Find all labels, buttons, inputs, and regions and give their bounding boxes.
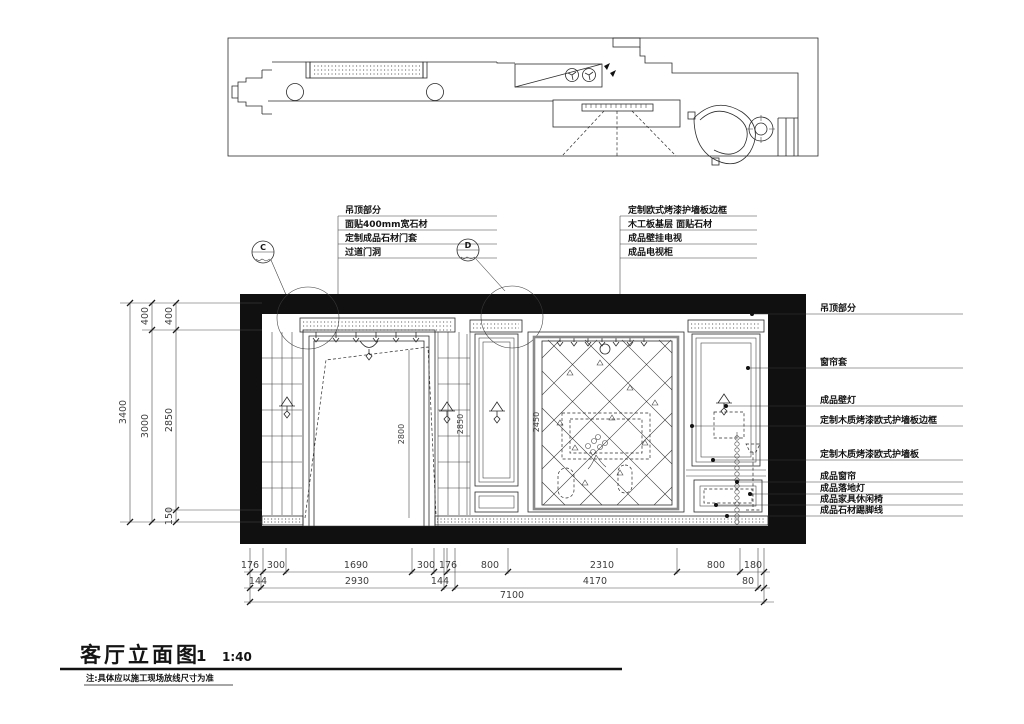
dim-b2-144a: 144: [249, 576, 267, 587]
ceiling-label-right: 吊顶部分: [820, 302, 856, 314]
marker-c-letter: C: [260, 243, 266, 252]
dim-2850: 2850: [164, 408, 175, 432]
dim-b1-180: 180: [744, 560, 762, 571]
drawing-note: 注:具体应以施工现场放线尺寸为准: [86, 673, 214, 683]
dim-400-mid: 400: [140, 307, 151, 325]
lounge-chair-label: 成品家具休闲椅: [820, 493, 883, 505]
door-height-dim: 2800: [397, 424, 406, 444]
dim-b2-4170: 4170: [583, 576, 607, 587]
dim-b2-80: 80: [742, 576, 754, 587]
section-marker-c: C: [252, 241, 287, 297]
dim-b2-2930: 2930: [345, 576, 369, 587]
dim-b1-2310: 2310: [590, 560, 614, 571]
skirting-label: 成品石材踢脚线: [820, 504, 883, 516]
drawing-number: 1: [196, 647, 206, 665]
dim-b1-176a: 176: [241, 560, 259, 571]
panel-frame-edge-label: 定制木质烤漆欧式护墙板边框: [819, 414, 937, 426]
title-block: 客厅立面图 1 1:40 注:具体应以施工现场放线尺寸为准: [60, 643, 622, 685]
wall-height-dim: 2850: [456, 414, 465, 434]
marker-d-letter: D: [465, 241, 472, 250]
ceiling-label: 吊顶部分: [345, 204, 381, 216]
elevation-view: 2800 2850: [240, 286, 806, 544]
drawing-title: 客厅立面图: [80, 643, 200, 667]
dim-total-7100: 7100: [500, 590, 524, 601]
tv-cabinet-label: 成品电视柜: [628, 246, 673, 258]
dim-b1-800b: 800: [707, 560, 725, 571]
section-marker-d: D: [457, 239, 505, 291]
corridor-opening-label: 过道门洞: [345, 246, 381, 258]
wood-base-stone-label: 木工板基层 面贴石材: [627, 218, 712, 230]
elevation-drawing-sheet: 吊顶部分 面贴400mm宽石材 定制成品石材门套 过道门洞 定制欧式烤漆护墙板边…: [0, 0, 1024, 724]
wall-tv-label: 成品壁挂电视: [628, 232, 682, 244]
dim-b1-1690: 1690: [344, 560, 368, 571]
dim-3400: 3400: [118, 400, 129, 424]
dim-150: 150: [164, 507, 175, 525]
dimension-block-bottom: 176 300 1690 300 176 800 2310 800 180 14…: [241, 548, 774, 605]
floor-plan-strip: [228, 38, 818, 165]
dim-b2-144b: 144: [431, 576, 449, 587]
dim-3000: 3000: [140, 414, 151, 438]
panel-label: 定制木质烤漆欧式护墙板: [819, 448, 920, 460]
tv-wall-dim: 2450: [532, 412, 541, 432]
dim-b1-800a: 800: [481, 560, 499, 571]
wall-lamp-label: 成品壁灯: [820, 394, 856, 406]
floor-lamp-label: 成品落地灯: [820, 482, 865, 494]
curtain-box-label: 窗帘套: [820, 356, 848, 368]
stone-400-label: 面贴400mm宽石材: [345, 218, 428, 230]
drawing-canvas: 吊顶部分 面贴400mm宽石材 定制成品石材门套 过道门洞 定制欧式烤漆护墙板边…: [0, 0, 1024, 724]
dim-b1-300b: 300: [417, 560, 435, 571]
dim-b1-300a: 300: [267, 560, 285, 571]
stone-door-frame-label: 定制成品石材门套: [344, 232, 418, 244]
dim-400-inner: 400: [164, 307, 175, 325]
drawing-scale: 1:40: [222, 650, 252, 664]
dim-b1-176b: 176: [439, 560, 457, 571]
curtain-label: 成品窗帘: [820, 470, 856, 482]
panel-edge-frame-label: 定制欧式烤漆护墙板边框: [627, 204, 727, 216]
